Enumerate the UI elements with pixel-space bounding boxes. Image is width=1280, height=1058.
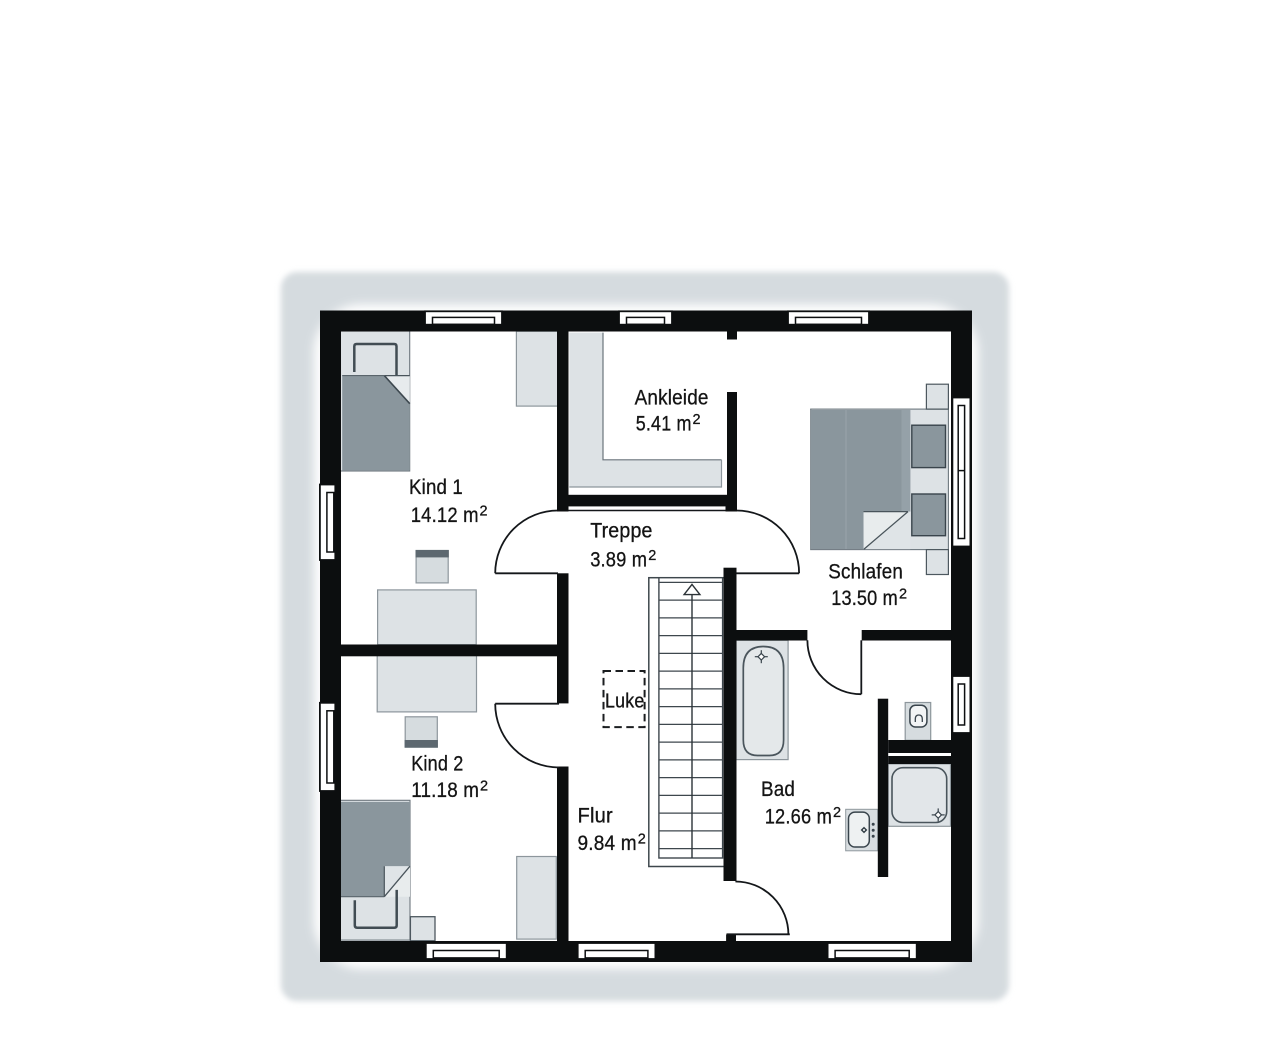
svg-text:2: 2 <box>833 805 841 821</box>
svg-text:Treppe: Treppe <box>590 520 652 543</box>
svg-text:2: 2 <box>899 587 907 603</box>
svg-text:5.41 m: 5.41 m <box>636 413 692 436</box>
svg-text:9.84 m: 9.84 m <box>578 832 637 855</box>
svg-text:2: 2 <box>693 412 701 428</box>
svg-text:Kind 1: Kind 1 <box>409 476 463 499</box>
svg-text:Schlafen: Schlafen <box>828 561 903 584</box>
svg-text:Bad: Bad <box>761 778 795 801</box>
svg-text:2: 2 <box>648 548 656 564</box>
svg-text:12.66 m: 12.66 m <box>765 806 832 829</box>
svg-text:2: 2 <box>480 779 488 795</box>
svg-text:Luke: Luke <box>605 691 645 713</box>
svg-text:Kind 2: Kind 2 <box>411 753 463 776</box>
svg-text:Ankleide: Ankleide <box>635 387 709 410</box>
svg-text:14.12 m: 14.12 m <box>411 504 479 527</box>
svg-text:2: 2 <box>480 504 488 520</box>
svg-text:Flur: Flur <box>578 805 613 828</box>
svg-text:3.89 m: 3.89 m <box>590 549 647 572</box>
svg-text:13.50 m: 13.50 m <box>831 587 898 610</box>
svg-text:11.18 m: 11.18 m <box>411 779 479 802</box>
svg-text:2: 2 <box>638 832 646 848</box>
